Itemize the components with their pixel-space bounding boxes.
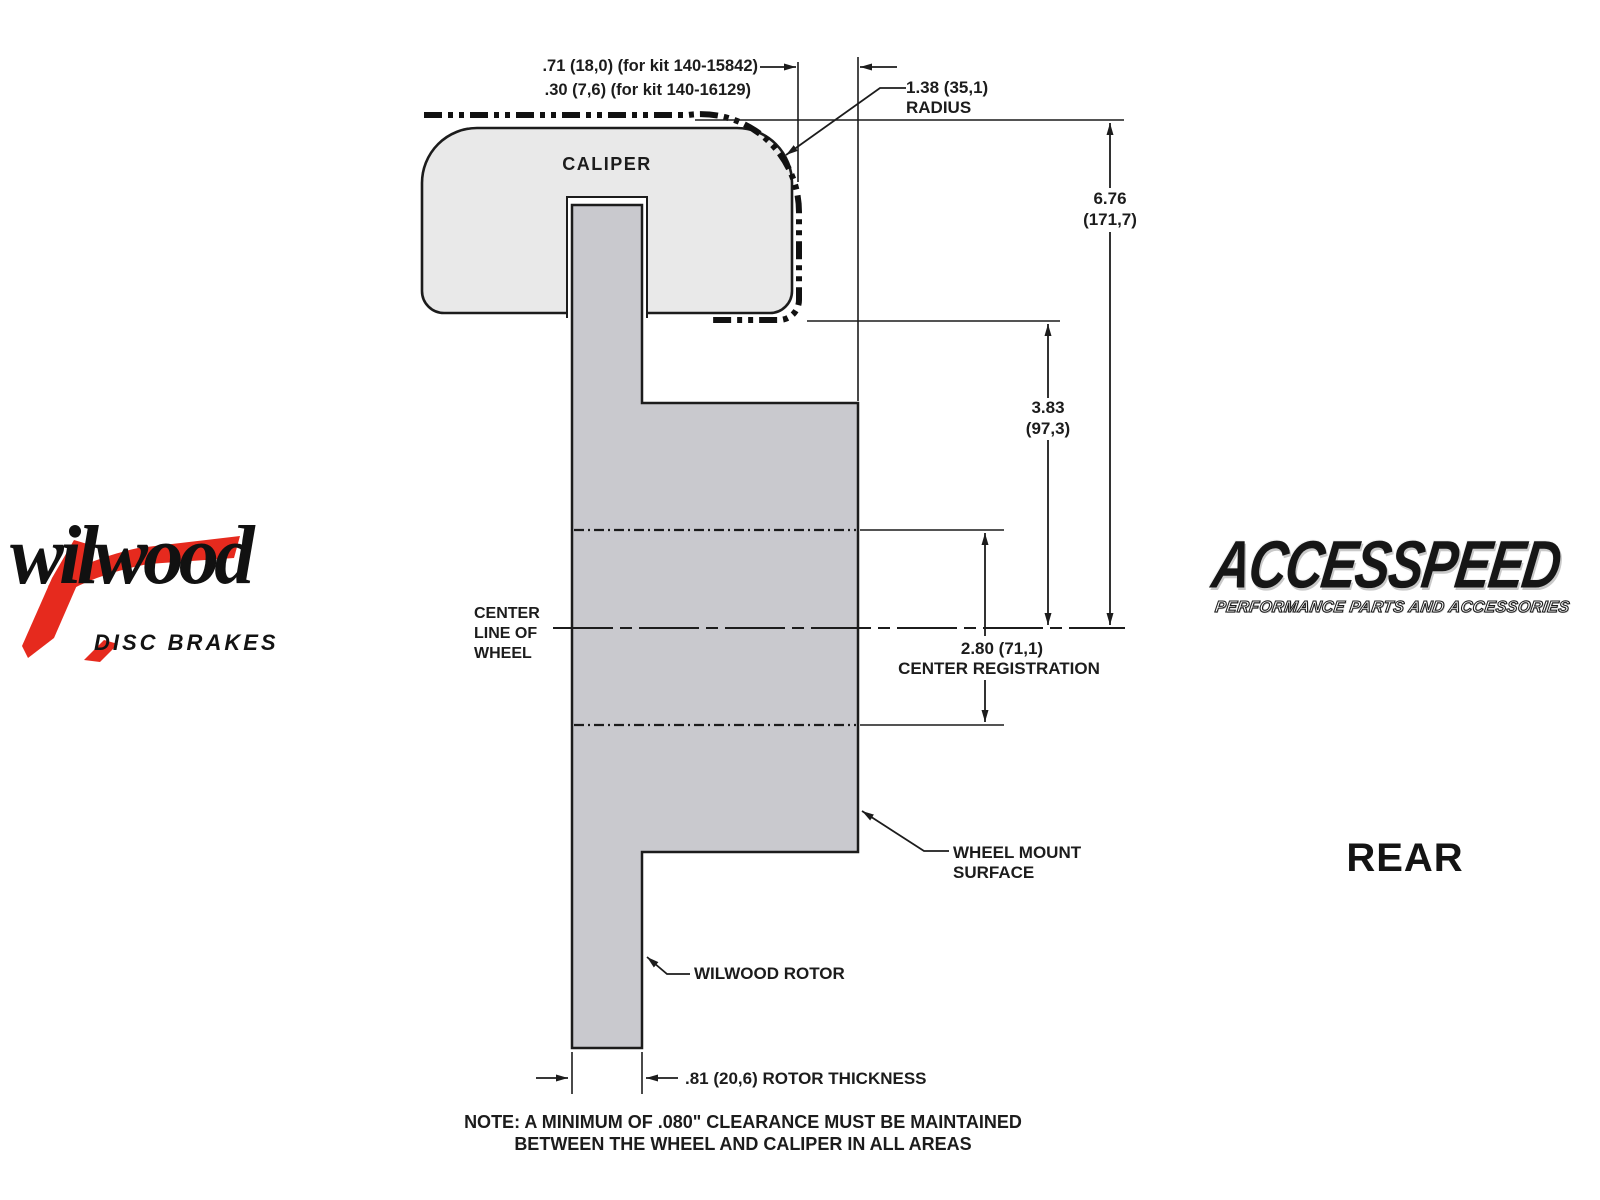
wilwood-tagline: DISC BRAKES xyxy=(94,630,279,656)
rotor-leader xyxy=(647,957,690,974)
overall-height-value: 6.76 xyxy=(1093,189,1126,208)
rotor-hat-cross-section xyxy=(572,205,858,1048)
accesspeed-wordmark: ACCESSPEED xyxy=(1208,526,1565,603)
brake-dimension-diagram: .71 (18,0) (for kit 140-15842) .30 (7,6)… xyxy=(0,0,1600,1200)
radius-word: RADIUS xyxy=(906,98,971,117)
dim-radius-leader xyxy=(786,88,906,155)
note-line-1: NOTE: A MINIMUM OF .080" CLEARANCE MUST … xyxy=(464,1112,1022,1132)
rotor-thickness-label: .81 (20,6) ROTOR THICKNESS xyxy=(685,1069,927,1088)
centerline-label-3: WHEEL xyxy=(474,645,532,662)
accesspeed-logo: ACCESSPEED PERFORMANCE PARTS AND ACCESSO… xyxy=(1192,526,1592,656)
rear-label: REAR xyxy=(1340,836,1470,881)
wilwood-logo: wilwood DISC BRAKES xyxy=(8,520,328,665)
note-line-2: BETWEEN THE WHEEL AND CALIPER IN ALL ARE… xyxy=(514,1134,971,1154)
centerline-label-1: CENTER xyxy=(474,605,540,622)
center-registration-value: 2.80 (71,1) xyxy=(961,639,1043,658)
kit-offset-line2: .30 (7,6) (for kit 140-16129) xyxy=(545,81,751,99)
caliper-label: CALIPER xyxy=(562,154,652,174)
wheel-mount-label-1: WHEEL MOUNT xyxy=(953,843,1082,862)
wheel-mount-leader xyxy=(862,811,949,851)
wilwood-wordmark: wilwood xyxy=(10,506,317,605)
rotor-label: WILWOOD ROTOR xyxy=(694,964,845,983)
kit-offset-line1: .71 (18,0) (for kit 140-15842) xyxy=(542,57,758,75)
centerline-label-2: LINE OF xyxy=(474,625,537,642)
overall-height-mm: (171,7) xyxy=(1083,210,1137,229)
wheel-mount-label-2: SURFACE xyxy=(953,863,1034,882)
caliper-height-mm: (97,3) xyxy=(1026,419,1070,438)
radius-value: 1.38 (35,1) xyxy=(906,78,988,97)
center-registration-label: CENTER REGISTRATION xyxy=(898,659,1100,678)
caliper-height-value: 3.83 xyxy=(1031,398,1064,417)
accesspeed-tagline: PERFORMANCE PARTS AND ACCESSORIES xyxy=(1213,599,1570,617)
